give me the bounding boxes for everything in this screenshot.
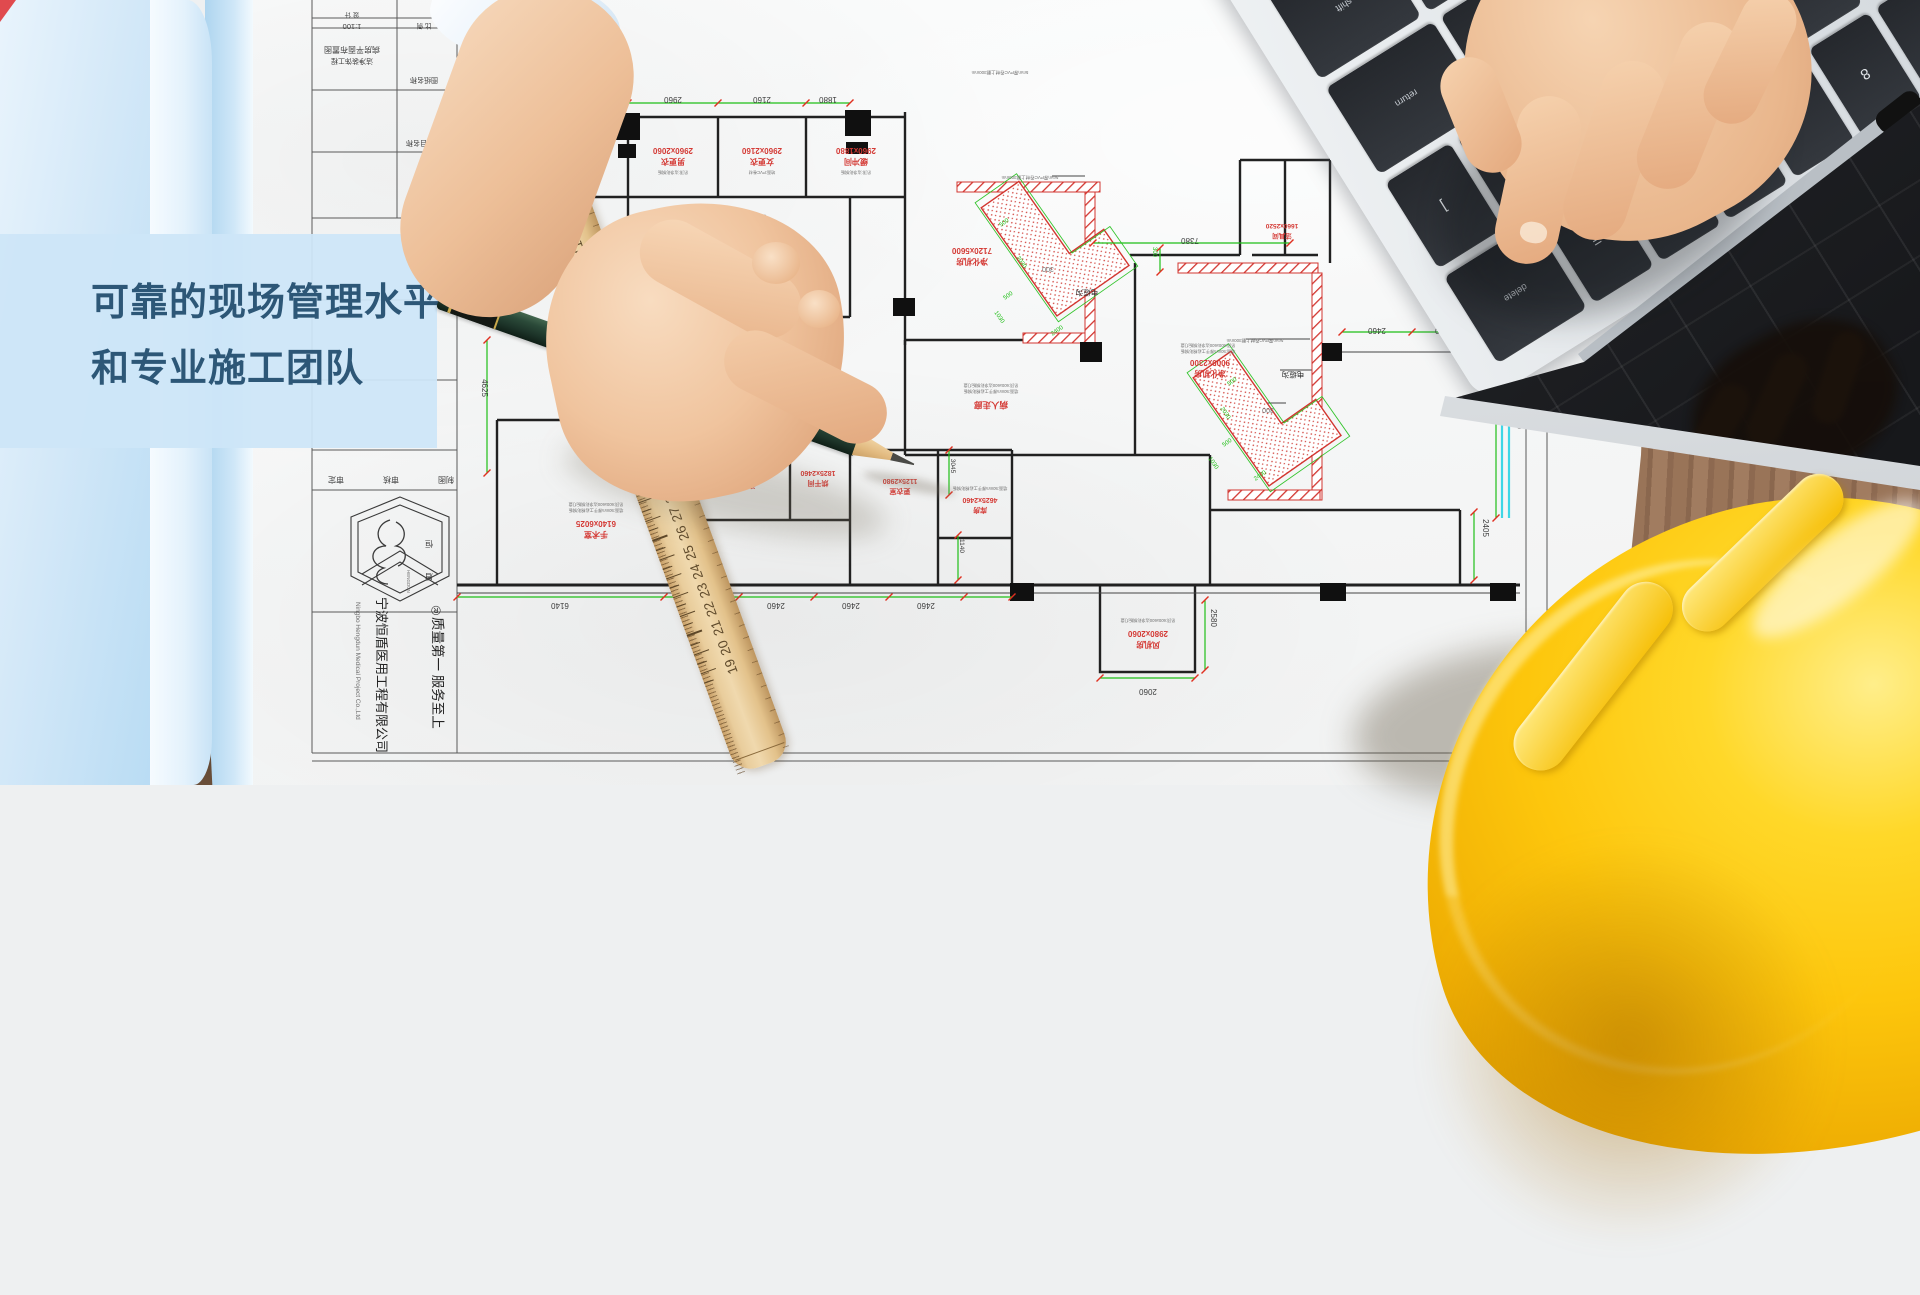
ruler-end-cap (735, 742, 784, 761)
plan-text: 地面:PVC卷材 (749, 169, 776, 176)
hat-shading (1370, 795, 1891, 1288)
plan-text: 1660x2520 (1265, 222, 1298, 229)
plan-text: 300 (1262, 406, 1274, 413)
plan-text: 1880 (819, 95, 837, 104)
knuckle (752, 242, 800, 284)
stippled-structures (975, 147, 1350, 491)
plan-text: ® (431, 603, 441, 618)
plan-text: 2960x2160 (741, 146, 782, 155)
plan-text: 墙面:50mm厚手工岩棉彩钢板 (1180, 348, 1235, 355)
plan-text: 300 (1151, 247, 1157, 258)
plan-text: 2460 (1368, 326, 1386, 335)
plan-text: 吊顶:600x600洁净彩钢板灯盘 (569, 501, 624, 508)
plan-text: 洁净装饰工程 (331, 57, 373, 66)
hero-title-line2: 和专业施工团队 (91, 336, 521, 402)
plan-text: 2580 (1209, 609, 1218, 627)
plan-text: 制图 (438, 475, 454, 485)
plan-text: 吊顶:洁净彩钢板 (840, 169, 871, 176)
plan-text: 墙面:50mm厚手工岩棉彩钢板 (963, 388, 1018, 395)
plan-text: 审核 (383, 475, 399, 485)
plan-text: 吊顶:600x600洁净彩钢板灯盘 (964, 382, 1019, 389)
plan-text: 洁具间 (1272, 232, 1292, 241)
ruler-number: 19 (719, 650, 741, 676)
plan-text: 墙面:50mm厚手工岩棉彩钢板 (568, 507, 623, 514)
plan-text: 盾 (425, 572, 433, 582)
plan-text: 净化机房 (956, 257, 988, 267)
plan-text: 6140x6025 (575, 519, 616, 528)
plan-text: 质量第一 服务至上 (430, 617, 446, 729)
plan-text: 恒 (425, 539, 433, 549)
plan-text: 2460 (842, 601, 860, 610)
plan-text: 吊顶:600x600洁净彩钢板灯盘 (1121, 617, 1176, 624)
plan-text: 1140 (958, 539, 965, 553)
plan-text: 500 (1222, 437, 1234, 448)
plan-text: 6140 (551, 601, 569, 610)
plan-text: 5mm厚PVC卷材上翻300mm (1226, 337, 1283, 344)
plan-text: 库房 (973, 506, 987, 515)
plan-text: 电缆沟 (1076, 288, 1099, 298)
plan-text: 净化机房 (1194, 369, 1226, 379)
plan-text: 2160 (753, 95, 771, 104)
plan-text: 1030 (993, 310, 1006, 325)
plan-text: 宁波恒盾医用工程有限公司 (374, 597, 389, 753)
plan-text: 缓冲间 (844, 157, 868, 167)
plan-text: 5mm厚PVC卷材上翻300mm (1001, 174, 1058, 181)
plan-text: Ningbo Hengdun Medical Project Co.,Ltd (354, 602, 361, 720)
pencil-graphite-tip (890, 452, 916, 468)
hero-banner: { "hero": { "line1": "可靠的现场管理水平", "line2… (0, 0, 1920, 785)
plan-text: 4625x2460 (962, 496, 997, 503)
plan-text: 手术室 (584, 530, 608, 540)
plan-text: 审定 (328, 475, 344, 485)
plan-text: 比 例 (417, 22, 432, 31)
plan-text: 2960 (664, 95, 682, 104)
plan-text: 病房平面布置图 (324, 45, 380, 55)
plan-text: 电缆沟 (1282, 370, 1305, 380)
plan-text: 2460 (917, 601, 935, 610)
plan-text: 1:100 (343, 22, 362, 31)
plan-text: 3045 (949, 459, 956, 474)
plan-text: 2980x2060 (1127, 629, 1168, 638)
plan-text: 7380 (1181, 236, 1199, 245)
plan-text: 风机房 (1136, 640, 1160, 650)
plan-text: 男更衣 (661, 157, 685, 167)
knuckle (798, 290, 840, 328)
plan-text: 2960x2060 (652, 146, 693, 155)
plan-text: 500 (1003, 290, 1015, 301)
plan-text: HENGDUN (406, 570, 411, 593)
plan-text: 5mm厚PVC卷材上翻300mm (971, 69, 1028, 76)
plan-text: 2460 (767, 601, 785, 610)
plan-text: 2405 (1481, 519, 1490, 537)
plan-text: 女更衣 (750, 157, 774, 167)
plan-text: 2060 (1139, 687, 1157, 696)
plan-text: 1030 (1207, 456, 1220, 471)
plan-text: 墙面:50mm厚手工岩棉彩钢板 (952, 485, 1007, 492)
hengdun-logo (351, 497, 449, 601)
plan-text: 吊顶:洁净彩钢板 (657, 169, 688, 176)
plan-text: 7120x5600 (951, 246, 992, 255)
plan-text: 9000x2300 (1189, 358, 1230, 367)
plan-text: 300 (1042, 265, 1054, 272)
plan-text: 设 计 (344, 11, 359, 20)
plan-text: 图纸名称 (410, 76, 438, 85)
plan-text: 病人走廊 (974, 400, 1009, 410)
plan-text: 2960x1880 (835, 146, 876, 155)
